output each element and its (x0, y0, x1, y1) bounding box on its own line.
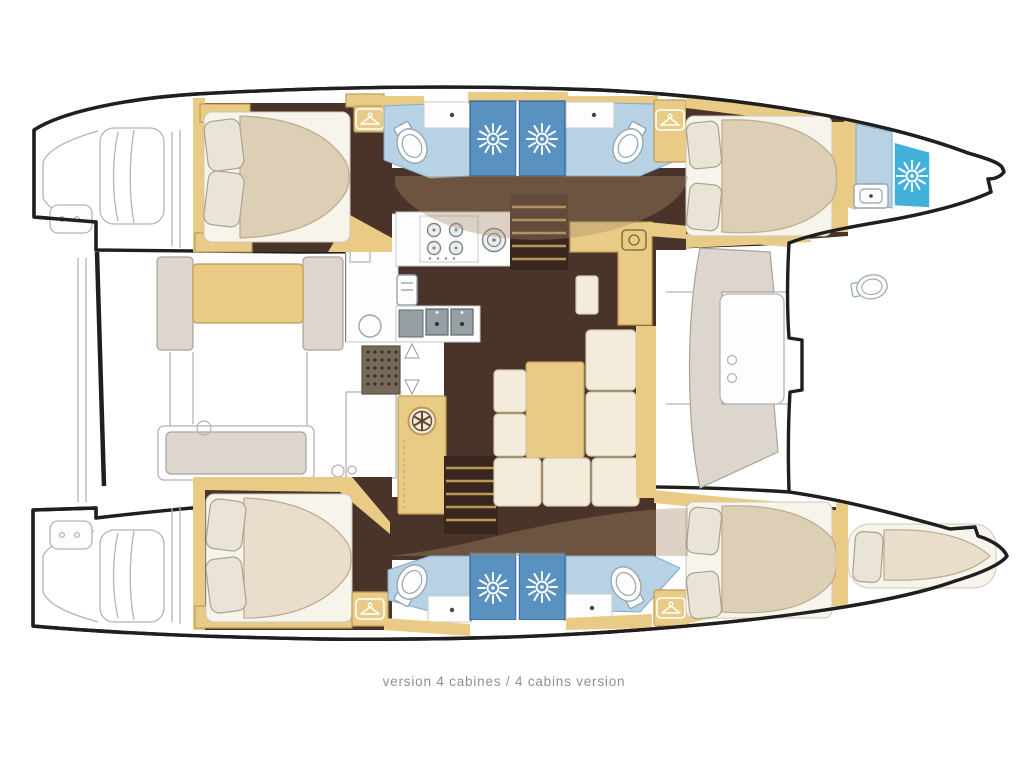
pillow (205, 556, 247, 614)
pillow (205, 498, 247, 552)
wardrobe-port-forward (654, 100, 686, 162)
bath-starboard-aft (384, 556, 472, 636)
pillow (686, 182, 723, 231)
sink-counter (424, 102, 472, 128)
sink-counter (566, 102, 614, 128)
cabin-port-forward (686, 96, 848, 248)
vent-cabinet (398, 396, 446, 514)
toilet-icon (850, 272, 889, 302)
shower-port (468, 92, 568, 176)
pillow (686, 120, 723, 169)
cockpit-table-top (166, 432, 306, 474)
bed-double (686, 116, 837, 236)
shower-starboard (470, 553, 565, 636)
round-sink-icon (359, 315, 381, 337)
catamaran-floor-plan: version 4 cabines / 4 cabins version (0, 0, 1024, 768)
aft-bench-right-cushion (303, 257, 343, 350)
bed-double (686, 502, 837, 620)
sink-counter (428, 596, 472, 622)
sink-icon (854, 184, 888, 208)
dining-table (526, 362, 584, 458)
pillow (686, 506, 723, 555)
cabin-starboard-aft (193, 477, 392, 630)
fridge (346, 392, 396, 478)
aft-bench-seat (193, 264, 303, 323)
sink-counter (566, 594, 612, 620)
wardrobe (352, 592, 388, 626)
aft-bench-left-cushion (157, 257, 193, 350)
bed-double (203, 112, 350, 242)
pillow (686, 570, 723, 619)
sofa-back-trim (636, 326, 656, 498)
forward-cockpit (666, 248, 788, 488)
stairs-starboard (444, 456, 498, 534)
pillow (203, 170, 245, 228)
galley-sinks (396, 306, 480, 342)
wardrobe (354, 106, 386, 132)
pillow (203, 118, 245, 172)
caption: version 4 cabines / 4 cabins version (383, 674, 626, 689)
wardrobe-starboard-forward (654, 590, 688, 626)
floor-grate (362, 346, 400, 394)
cabin-starboard-forward (686, 494, 848, 624)
cockpit-table (720, 294, 784, 404)
aft-cockpit (78, 252, 344, 502)
bed-double (205, 494, 352, 622)
cabin-port-aft (193, 94, 392, 252)
forward-cockpit-outline (788, 243, 803, 491)
cockpit-ring-2 (332, 465, 344, 477)
floor-plan-page: version 4 cabines / 4 cabins version (0, 0, 1024, 768)
pillow (852, 531, 883, 583)
oven-icon (397, 275, 417, 305)
transom-beam (97, 252, 104, 486)
